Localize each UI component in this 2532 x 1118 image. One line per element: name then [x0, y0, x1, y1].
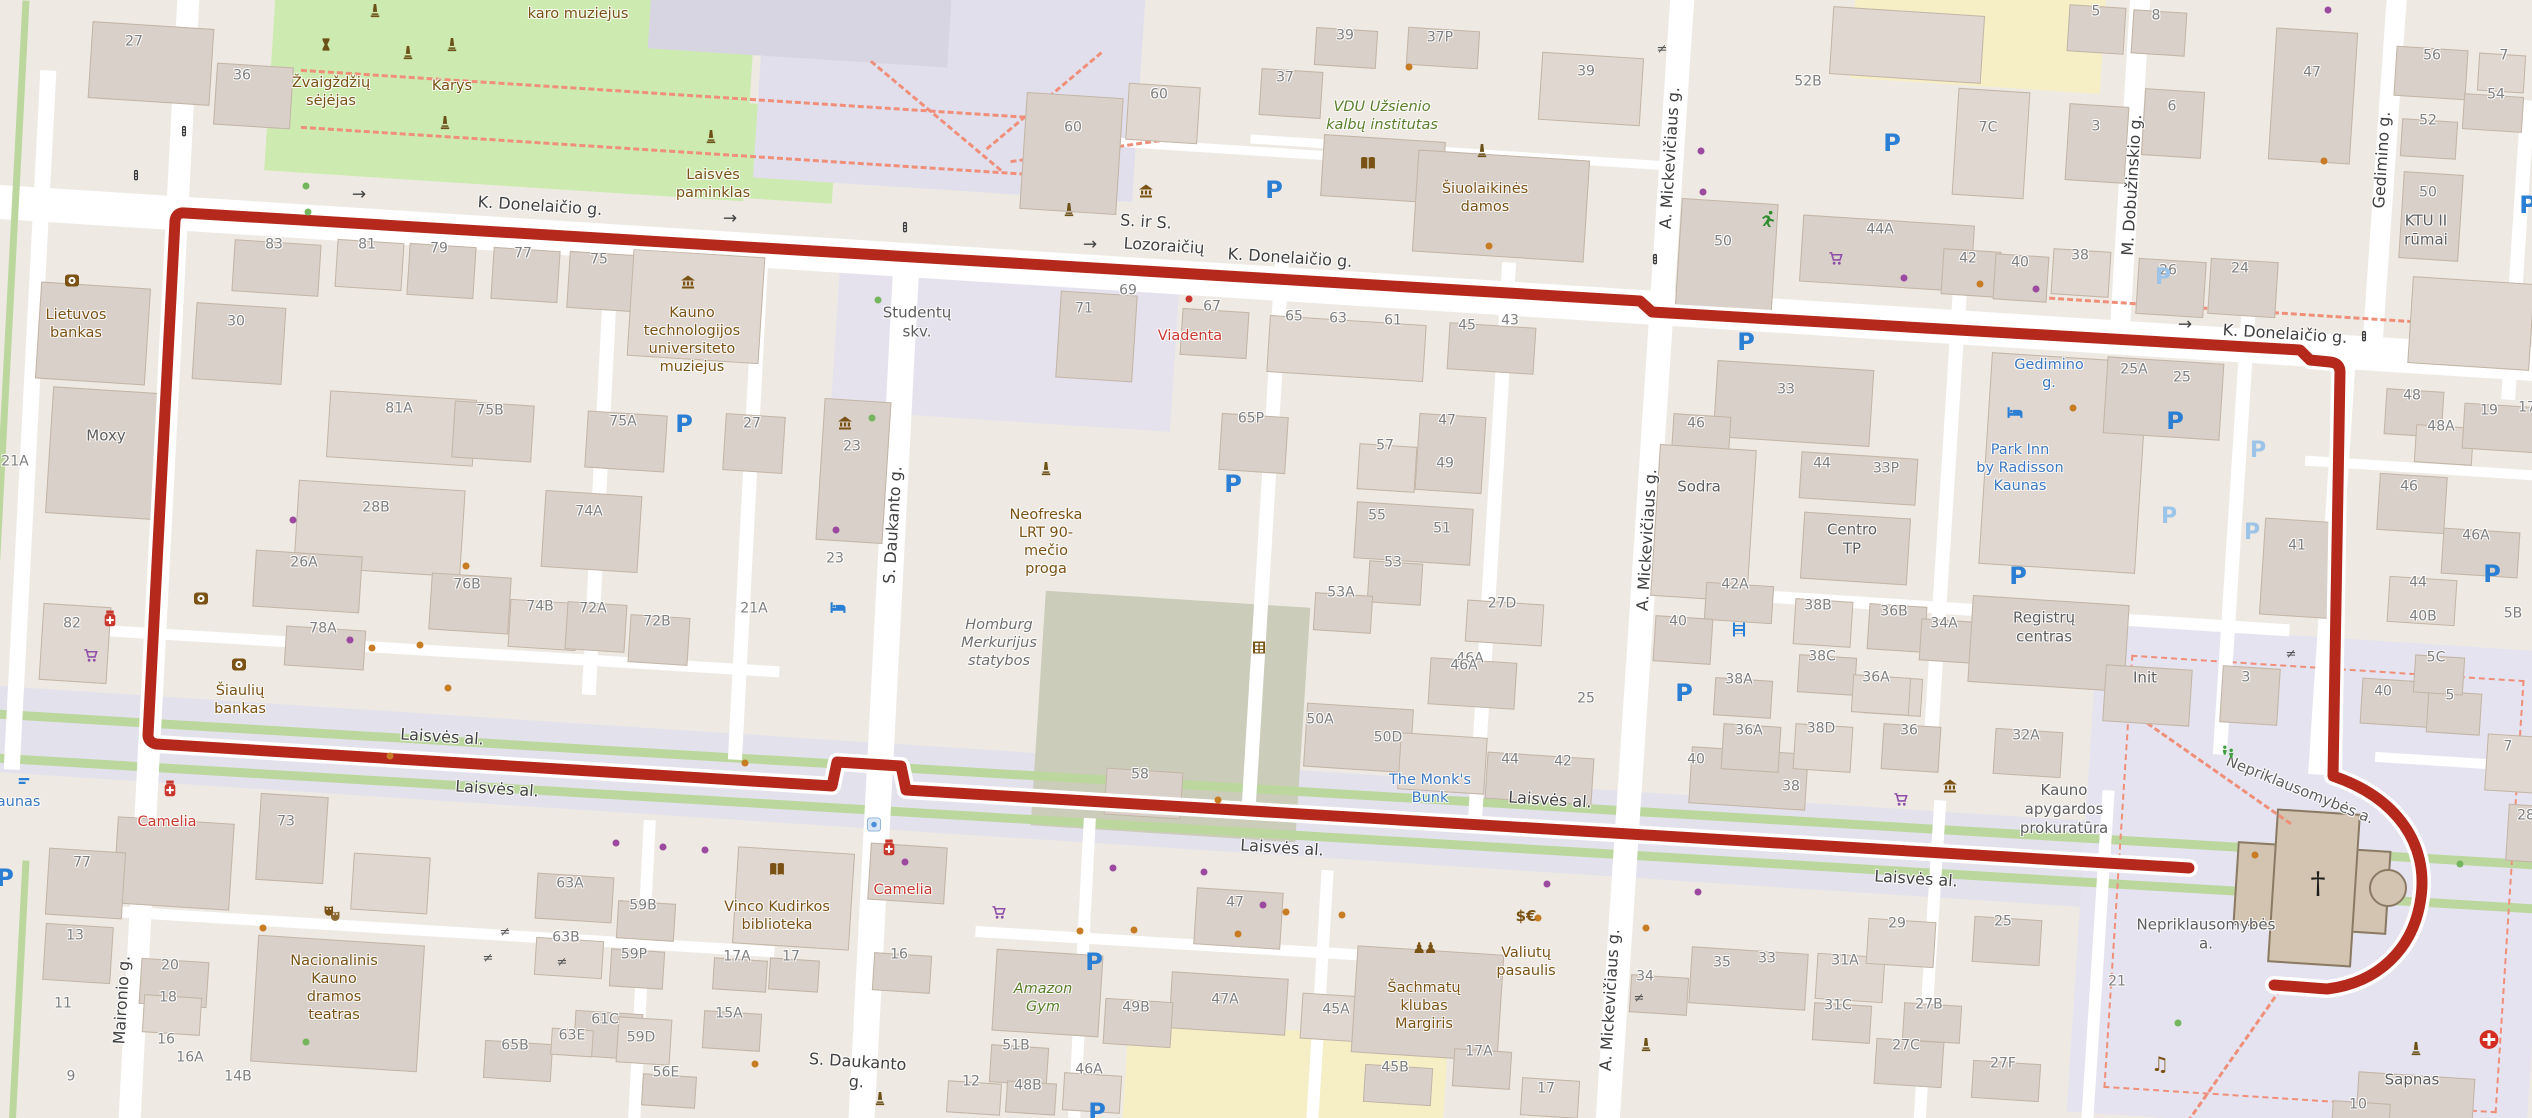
housenumber: 27F [1990, 1055, 2016, 1073]
museum-icon [680, 275, 696, 294]
housenumber: 40B [2409, 608, 2436, 626]
housenumber: 65 [1285, 308, 1303, 326]
tree-dot [875, 297, 882, 304]
housenumber: 54 [2487, 86, 2505, 104]
housenumber: 65P [1238, 410, 1264, 428]
housenumber: 73 [277, 813, 295, 831]
P-icon: P [2519, 193, 2532, 217]
housenumber: 78A [309, 620, 336, 638]
housenumber: 7 [2504, 738, 2513, 756]
housenumber: 74B [526, 598, 553, 616]
hospital-icon [2479, 1030, 2499, 1053]
housenumber: 63A [556, 875, 583, 893]
museum-icon [1138, 184, 1154, 203]
housenumber: 40 [2011, 254, 2029, 272]
poi-label: Karys [432, 77, 472, 95]
P-icon: P [2483, 562, 2501, 586]
bed-icon [830, 599, 847, 619]
monument-icon [873, 1091, 888, 1109]
tree-dot [1698, 148, 1705, 155]
place-label: KTU II rūmai [2404, 211, 2448, 249]
monument-icon [704, 129, 719, 147]
housenumber: 46 [2400, 478, 2418, 496]
tree-dot [1700, 189, 1707, 196]
P-icon: P [675, 412, 693, 436]
housenumber: 50D [1374, 729, 1403, 747]
tree-dot [2321, 158, 2328, 165]
housenumber: 46A [2462, 527, 2489, 545]
housenumber: 47 [2303, 64, 2321, 82]
housenumber: 6 [2168, 98, 2177, 116]
tree-dot [1643, 925, 1650, 932]
housenumber: 5C [2427, 649, 2446, 667]
reddot-icon [1186, 296, 1193, 303]
housenumber: 75B [476, 402, 503, 420]
housenumber: 45 [1458, 317, 1476, 335]
housenumber: 57 [1376, 437, 1394, 455]
housenumber: 38C [1808, 648, 1836, 666]
tree-dot [1339, 912, 1346, 919]
housenumber: 11 [54, 995, 72, 1013]
P-icon: P [1088, 1100, 1106, 1118]
housenumber: 47 [1226, 894, 1244, 912]
museum-icon [837, 416, 853, 435]
housenumber: 65B [501, 1037, 528, 1055]
housenumber: 33 [1758, 950, 1776, 968]
housenumber: 63 [1329, 310, 1347, 328]
monument-icon [1039, 461, 1054, 479]
housenumber: 42A [1721, 576, 1748, 594]
housenumber: 38B [1804, 597, 1831, 615]
tree-dot [347, 637, 354, 644]
housenumber: 50A [1306, 711, 1333, 729]
housenumber: 75 [590, 251, 608, 269]
housenumber: 56E [653, 1064, 680, 1082]
Pl-icon: P [2250, 440, 2266, 462]
housenumber: 67 [1203, 298, 1221, 316]
Pl-icon: P [2161, 506, 2177, 528]
tree-dot [1486, 243, 1493, 250]
housenumber: 61C [591, 1011, 619, 1029]
housenumber: 38 [1782, 778, 1800, 796]
housenumber: 36A [1862, 669, 1889, 687]
cart-icon [1829, 251, 1844, 269]
P-icon: P [2166, 409, 2184, 433]
housenumber: 34A [1930, 615, 1957, 633]
housenumber: 79 [430, 240, 448, 258]
housenumber: 21A [740, 600, 767, 618]
tree-dot [1077, 928, 1084, 935]
housenumber: 17A [723, 948, 750, 966]
tree-dot [660, 844, 667, 851]
monument-icon [445, 37, 460, 55]
poi-label: Valiutų pasaulis [1496, 944, 1555, 980]
P-icon: P [1265, 178, 1283, 202]
oneway-icon: ≠ [2286, 645, 2297, 661]
monument-icon [1475, 143, 1490, 161]
tree-dot [2325, 7, 2332, 14]
housenumber: 49 [1436, 455, 1454, 473]
tree-dot [1283, 909, 1290, 916]
P-icon: P [1883, 131, 1901, 155]
music-icon: ♫ [2151, 1054, 2169, 1074]
housenumber: 63E [559, 1027, 586, 1045]
housenumber: 31A [1831, 952, 1858, 970]
housenumber: 23 [843, 438, 861, 456]
P-icon: P [2009, 564, 2027, 588]
tree-dot [2175, 1020, 2182, 1027]
housenumber: 46A [1450, 657, 1477, 675]
housenumber: 72B [643, 613, 670, 631]
monument-icon [368, 3, 383, 21]
housenumber: 27D [1488, 595, 1517, 613]
housenumber: 10 [2349, 1096, 2367, 1114]
housenumber: 7 [2500, 47, 2509, 65]
tree-dot [1406, 64, 1413, 71]
playground-icon [2220, 744, 2237, 764]
housenumber: 3 [2092, 118, 2101, 136]
housenumber: 26A [290, 554, 317, 572]
housenumber: 52B [1794, 73, 1821, 91]
housenumber: 77 [514, 245, 532, 263]
housenumber: 83 [265, 236, 283, 254]
housenumber: 36 [233, 67, 251, 85]
housenumber: 49B [1122, 999, 1149, 1017]
housenumber: 81 [358, 236, 376, 254]
housenumber: 44 [1501, 751, 1519, 769]
traffic-icon [1649, 253, 1662, 269]
street-label: S. Daukanto g. [807, 1049, 907, 1095]
housenumber: 7C [1979, 119, 1998, 137]
pharmacy-icon [881, 839, 898, 859]
housenumber: 59B [629, 897, 656, 915]
tree-dot [833, 527, 840, 534]
housenumber: 60 [1150, 86, 1168, 104]
housenumber: 60 [1064, 119, 1082, 137]
map-canvas[interactable]: K. Donelaičio g.K. Donelaičio g.K. Donel… [0, 0, 2532, 1118]
housenumber: 31C [1824, 997, 1852, 1015]
tree-dot [742, 760, 749, 767]
arrow-icon: → [1083, 237, 1097, 254]
housenumber: 36B [1880, 603, 1907, 621]
housenumber: 39 [1336, 27, 1354, 45]
tree-dot [1215, 797, 1222, 804]
poi-label-blue: Gedimino g. [2014, 356, 2084, 392]
housenumber: 61 [1384, 312, 1402, 330]
housenumber: 9 [67, 1068, 76, 1086]
bunk-icon [1731, 622, 1747, 641]
museum-icon [1942, 779, 1958, 798]
traffic-icon [178, 125, 191, 141]
housenumber: 18 [159, 989, 177, 1007]
arrow-icon: → [352, 187, 366, 204]
oneway-icon: ≠ [1657, 40, 1668, 56]
book-icon [1360, 155, 1377, 175]
tree-dot [1977, 281, 1984, 288]
P-icon: P [1085, 950, 1103, 974]
housenumber: 40 [1669, 613, 1687, 631]
place-label: Kauno apygardos prokuratūra [2020, 781, 2108, 837]
housenumber: 21 [2108, 973, 2126, 991]
pharmacy-icon [162, 780, 179, 800]
housenumber: 59P [621, 946, 647, 964]
tree-dot [1235, 931, 1242, 938]
poi-label: Vinco Kudirkos biblioteka [724, 898, 830, 934]
housenumber: 27C [1892, 1037, 1920, 1055]
cart-icon [1894, 792, 1909, 810]
traffic-icon [2358, 330, 2371, 346]
oneway-icon: ≠ [1634, 989, 1645, 1005]
tree-dot [445, 685, 452, 692]
tree-dot [290, 517, 297, 524]
tree-dot [2457, 861, 2464, 868]
runner-icon [1760, 210, 1777, 230]
housenumber: 69 [1119, 282, 1137, 300]
tree-dot [1110, 865, 1117, 872]
housenumber: 17 [2518, 399, 2532, 417]
place-label: Studentų skv. [883, 303, 952, 341]
housenumber: 14B [224, 1068, 251, 1086]
housenumber: 32A [2012, 727, 2039, 745]
place-label: Moxy [86, 427, 125, 446]
housenumber: 42 [1959, 250, 1977, 268]
housenumber: 25 [2173, 369, 2191, 387]
housenumber: 81A [385, 400, 412, 418]
housenumber: 37 [1276, 69, 1294, 87]
place-label: Registrų centras [2013, 608, 2075, 646]
currency-icon: $€ [1516, 908, 1537, 924]
cart-icon [992, 905, 1007, 923]
housenumber: 25A [2120, 361, 2147, 379]
monument-icon [1062, 202, 1077, 220]
housenumber: 20 [161, 957, 179, 975]
housenumber: 28 [2517, 807, 2532, 825]
bank-icon [193, 591, 209, 610]
housenumber: 27B [1915, 996, 1942, 1014]
poi-label-italic: Homburg Merkurijus statybos [961, 616, 1037, 670]
housenumber: 27 [743, 415, 761, 433]
cart-icon [84, 648, 99, 666]
oneway-icon: ≠ [500, 923, 511, 939]
housenumber: 56 [2423, 47, 2441, 65]
traffic-icon [899, 221, 912, 237]
street-label: S. ir S. [1120, 210, 1173, 233]
poi-label: Žvaigždžių sėjėjas [292, 74, 370, 110]
tree-dot [463, 563, 470, 570]
housenumber: 47 [1438, 412, 1456, 430]
cross-icon: † [2311, 869, 2326, 899]
book-icon [769, 861, 786, 881]
housenumber: 38 [2071, 247, 2089, 265]
housenumber: 48A [2427, 418, 2454, 436]
Pl-icon: P [2155, 267, 2171, 289]
place-label: Init [2133, 669, 2157, 688]
place-label: Nepriklausomybės a. [2137, 915, 2276, 953]
monument-icon [1639, 1037, 1654, 1055]
housenumber: 38D [1807, 720, 1836, 738]
housenumber: 8 [2152, 7, 2161, 25]
tree-dot [869, 415, 876, 422]
housenumber: 40 [1687, 751, 1705, 769]
tree-dot [305, 209, 312, 216]
housenumber: 42 [1554, 753, 1572, 771]
bed-icon [2007, 404, 2024, 424]
tree-dot [1131, 927, 1138, 934]
poi-label: Nacionalinis Kauno dramos teatras [290, 952, 378, 1025]
poi-label: Šiaulių bankas [214, 682, 266, 718]
place-label: Centro TP [1827, 520, 1877, 558]
poi-label-green: VDU Užsienio kalbų institutas [1326, 98, 1438, 134]
housenumber: 50 [2419, 184, 2437, 202]
housenumber: 51 [1433, 520, 1451, 538]
housenumber: 5 [2092, 3, 2101, 21]
poi-label: Lietuvos bankas [46, 306, 107, 342]
tree-dot [1901, 275, 1908, 282]
tree-dot [387, 753, 394, 760]
housenumber: 24 [2231, 260, 2249, 278]
tree-dot [369, 645, 376, 652]
tree-dot [702, 847, 709, 854]
P-icon: P [1737, 330, 1755, 354]
housenumber: 76B [453, 576, 480, 594]
housenumber: 51B [1002, 1037, 1029, 1055]
housenumber: 13 [66, 927, 84, 945]
housenumber: 71 [1075, 300, 1093, 318]
tree-dot [417, 642, 424, 649]
poi-label-red: Camelia [138, 813, 197, 831]
oneway-icon: ≠ [483, 949, 494, 965]
bank-icon [231, 657, 247, 676]
tree-dot [303, 183, 310, 190]
housenumber: 47A [1211, 991, 1238, 1009]
housenumber: 46 [1687, 415, 1705, 433]
place-label: Sodra [1677, 478, 1721, 497]
cinema-icon [1251, 640, 1267, 659]
traffic-icon [130, 169, 143, 185]
housenumber: 58 [1131, 766, 1149, 784]
housenumber: 17 [1537, 1080, 1555, 1098]
housenumber: 74A [575, 503, 602, 521]
housenumber: 45A [1322, 1001, 1349, 1019]
housenumber: 23 [826, 550, 844, 568]
arrow-icon: → [723, 211, 737, 228]
tree-dot [613, 840, 620, 847]
housenumber: 12 [962, 1073, 980, 1091]
housenumber: 52 [2419, 112, 2437, 130]
monument-icon [438, 115, 453, 133]
monument-icon [2409, 1041, 2424, 1059]
housenumber: 17 [782, 948, 800, 966]
bank-icon [64, 273, 80, 292]
housenumber: 75A [609, 413, 636, 431]
poi-label: Neofreska LRT 90- mečio proga [1010, 506, 1083, 579]
pharmacy-icon [102, 610, 119, 630]
housenumber: 55 [1368, 507, 1386, 525]
monument-icon [401, 45, 416, 63]
housenumber: 29 [1888, 915, 1906, 933]
housenumber: 44 [1813, 455, 1831, 473]
housenumber: 48 [2403, 387, 2421, 405]
tree-dot [303, 1039, 310, 1046]
poi-label: Laisvės paminklas [676, 166, 750, 202]
housenumber: 43 [1501, 312, 1519, 330]
poi-label: karo muziejus [528, 5, 629, 23]
housenumber: 17A [1465, 1043, 1492, 1061]
housenumber: 77 [73, 854, 91, 872]
housenumber: 16 [157, 1031, 175, 1049]
chess-icon: ♟♟ [1413, 940, 1436, 956]
housenumber: 5 [2446, 687, 2455, 705]
housenumber: 41 [2288, 537, 2306, 555]
tree-dot [260, 925, 267, 932]
poi-label: Šiuolaikinės damos [1442, 180, 1528, 216]
housenumber: 44 [2409, 574, 2427, 592]
housenumber: 40 [2374, 683, 2392, 701]
housenumber: 45B [1381, 1059, 1408, 1077]
housenumber: 59D [627, 1029, 656, 1047]
housenumber: 72A [579, 600, 606, 618]
housenumber: 19 [2480, 402, 2498, 420]
housenumber: 25 [1994, 913, 2012, 931]
masks-icon [324, 904, 341, 924]
place-label: Sapnas [2385, 1071, 2440, 1090]
oneway-icon: ≠ [557, 953, 568, 969]
housenumber: 35 [1713, 954, 1731, 972]
poi-label-blue: Park Inn by Radisson Kaunas [1976, 441, 2063, 495]
housenumber: 34 [1636, 968, 1654, 986]
Pl-icon: P [2244, 522, 2260, 544]
poi-label-blue: The Monk's Bunk [1389, 771, 1471, 807]
housenumber: 50 [1714, 233, 1732, 251]
housenumber: 28B [362, 499, 389, 517]
tree-dot [1260, 902, 1267, 909]
tree-dot [2033, 286, 2040, 293]
housenumber: 63B [552, 929, 579, 947]
P-icon: P [0, 866, 14, 890]
housenumber: 33P [1873, 460, 1899, 478]
housenumber: 44A [1866, 221, 1893, 239]
housenumber: 82 [63, 615, 81, 633]
poi-label: Šachmatų klubas Margiris [1387, 979, 1460, 1033]
housenumber: 36A [1735, 722, 1762, 740]
poi-label-green: Amazon Gym [1014, 980, 1073, 1016]
tree-dot [1544, 881, 1551, 888]
housenumber: 46A [1075, 1061, 1102, 1079]
housenumber: 21A [1, 453, 28, 471]
housenumber: 30 [227, 313, 245, 331]
housenumber: 48B [1014, 1077, 1041, 1095]
tree-dot [2252, 852, 2259, 859]
housenumber: 37P [1427, 29, 1453, 47]
tree-dot [1201, 869, 1208, 876]
poi-label-blue: Kaunas [0, 793, 40, 811]
housenumber: 38A [1725, 671, 1752, 689]
tree-dot [1695, 889, 1702, 896]
housenumber: 5B [2504, 605, 2523, 623]
housenumber: 36 [1900, 722, 1918, 740]
tree-dot [2070, 405, 2077, 412]
housenumber: 53A [1327, 584, 1354, 602]
housenumber: 16A [176, 1049, 203, 1067]
housenumber: 3 [2242, 669, 2251, 687]
housenumber: 53 [1384, 554, 1402, 572]
hourglass-icon [319, 38, 333, 55]
bluemisc-icon [18, 774, 30, 790]
housenumber: 39 [1577, 63, 1595, 81]
housenumber: 25 [1577, 690, 1595, 708]
tree-dot [752, 1061, 759, 1068]
poi-label-red: Camelia [874, 881, 933, 899]
